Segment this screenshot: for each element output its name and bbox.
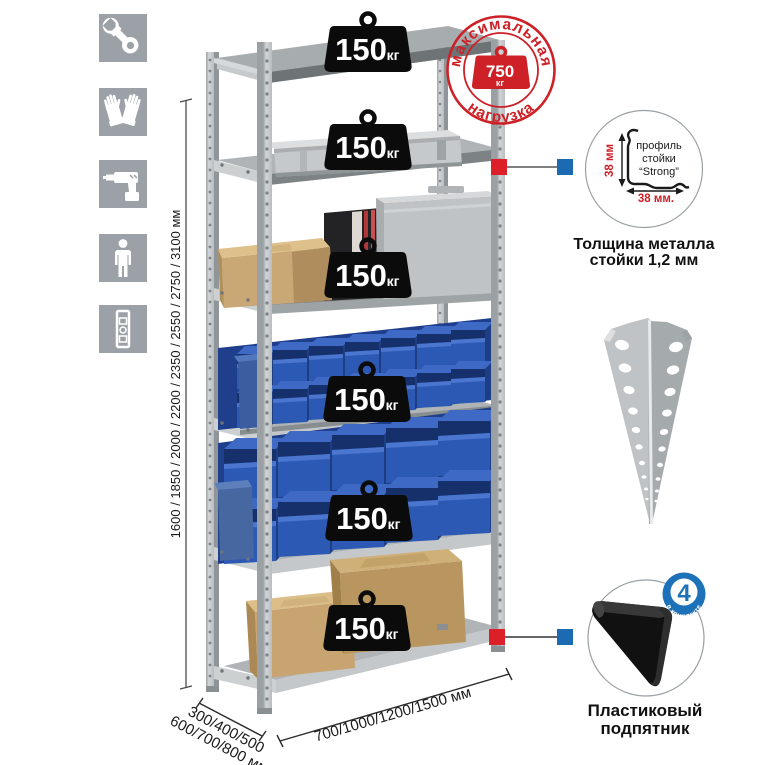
svg-text:стойки: стойки	[642, 153, 676, 165]
svg-text:стойки 1,2 мм: стойки 1,2 мм	[590, 252, 699, 269]
svg-text:4: 4	[677, 580, 691, 607]
svg-text:“Strong”: “Strong”	[639, 166, 679, 178]
svg-text:1600 / 1850 / 2000 / 2200 / 23: 1600 / 1850 / 2000 / 2200 / 2350 / 2550 …	[168, 210, 183, 539]
svg-text:кг: кг	[496, 78, 505, 88]
svg-text:подпятник: подпятник	[601, 719, 690, 738]
svg-text:38 мм: 38 мм	[604, 144, 616, 177]
svg-text:38 мм.: 38 мм.	[638, 193, 674, 205]
svg-text:Пластиковый: Пластиковый	[588, 701, 703, 720]
svg-text:профиль: профиль	[636, 140, 682, 152]
svg-text:Толщина металла: Толщина металла	[573, 236, 714, 253]
